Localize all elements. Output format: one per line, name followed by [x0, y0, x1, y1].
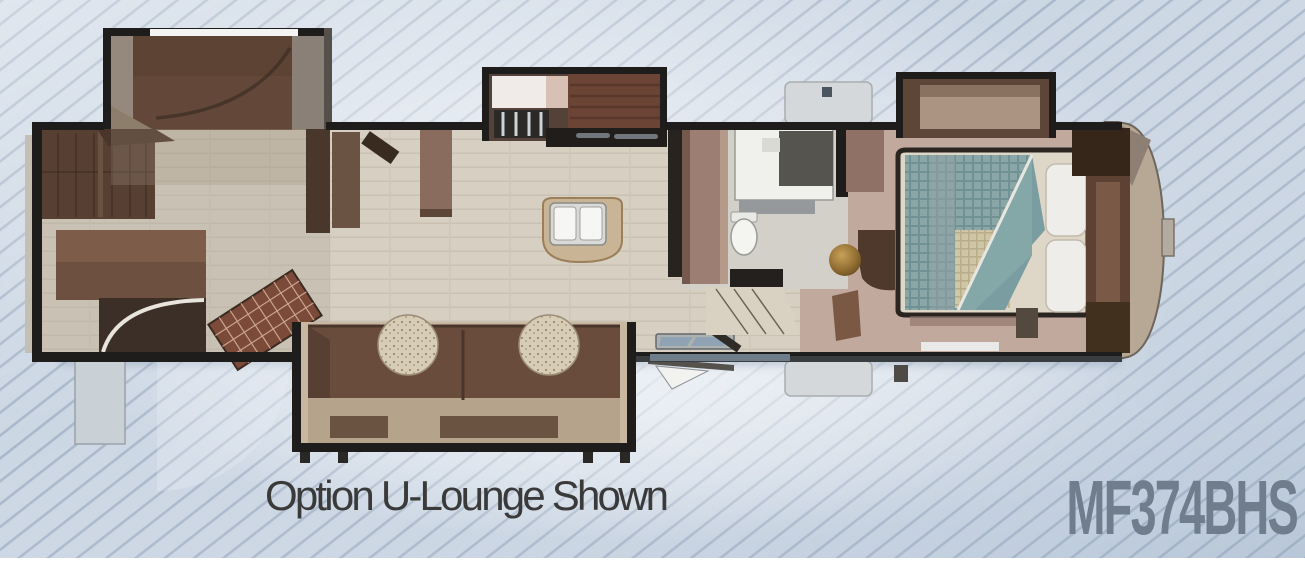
svg-text:MF374BHS: MF374BHS — [1066, 464, 1297, 551]
svg-text:Option U-Lounge Shown: Option U-Lounge Shown — [265, 472, 667, 519]
